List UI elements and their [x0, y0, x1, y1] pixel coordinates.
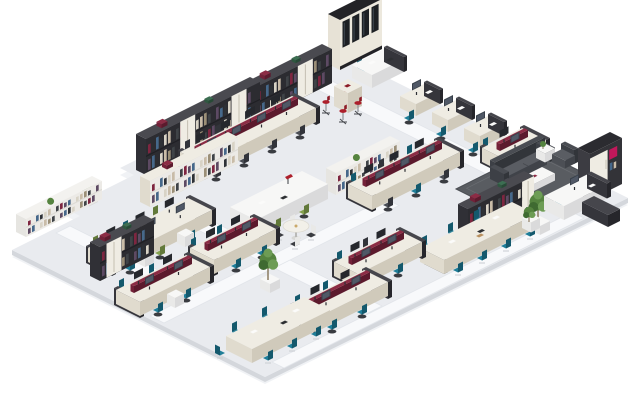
office-floorplan-canvas [0, 0, 640, 400]
office-floorplan [0, 0, 640, 400]
